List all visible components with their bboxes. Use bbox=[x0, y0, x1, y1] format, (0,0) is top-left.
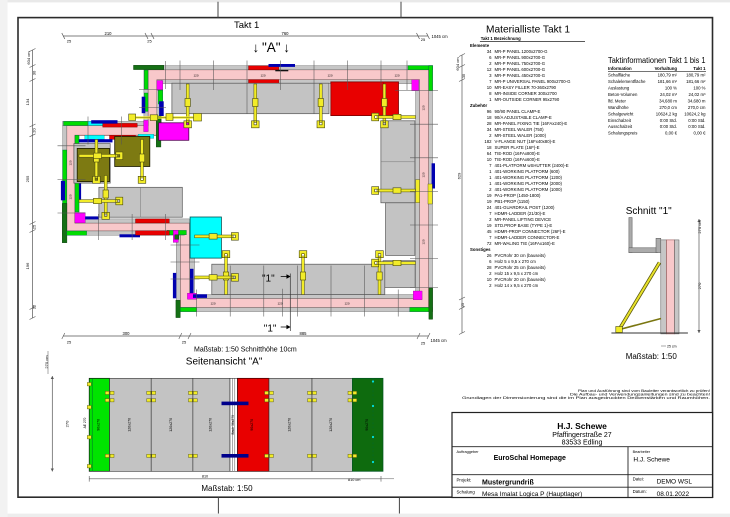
svg-text:25 cm: 25 cm bbox=[667, 345, 677, 349]
svg-text:Taktinformationen Takt 1 bis: Taktinformationen Takt 1 bis 1 bbox=[608, 56, 706, 65]
svg-text:SUPER PLATE (16F)-E: SUPER PLATE (16F)-E bbox=[495, 145, 540, 150]
svg-text:28: 28 bbox=[487, 121, 492, 126]
svg-text:25: 25 bbox=[67, 340, 72, 345]
svg-text:PVCRohr 30 cm (bauseits): PVCRohr 30 cm (bauseits) bbox=[495, 253, 547, 258]
svg-text:Ausschalzeit: Ausschalzeit bbox=[608, 124, 633, 129]
svg-text:24: 24 bbox=[487, 205, 492, 210]
svg-text:PVCRohr 25 cm (bauseits): PVCRohr 25 cm (bauseits) bbox=[495, 265, 547, 270]
svg-text:MR-WALING TIE (16FAx160)-E: MR-WALING TIE (16FAx160)-E bbox=[495, 241, 556, 246]
svg-text:180,79 m²: 180,79 m² bbox=[658, 73, 678, 78]
svg-text:lfd. Meter: lfd. Meter bbox=[608, 98, 626, 103]
svg-text:83533 Edling: 83533 Edling bbox=[562, 439, 603, 446]
svg-text:25: 25 bbox=[32, 304, 37, 309]
svg-text:PVCRohr 20 cm (bauseits): PVCRohr 20 cm (bauseits) bbox=[495, 277, 547, 282]
svg-text:Takt 1: Takt 1 bbox=[234, 20, 259, 31]
svg-text:"1": "1" bbox=[264, 323, 277, 334]
svg-text:TIE-ROD (16FAx600)-E: TIE-ROD (16FAx600)-E bbox=[495, 157, 541, 162]
svg-text:120: 120 bbox=[422, 239, 426, 244]
svg-text:181,66 m²: 181,66 m² bbox=[686, 79, 706, 84]
svg-text:19: 19 bbox=[487, 223, 492, 228]
svg-text:19: 19 bbox=[487, 199, 492, 204]
svg-text:270: 270 bbox=[64, 420, 69, 427]
svg-text:34,680 m: 34,680 m bbox=[659, 98, 677, 103]
svg-text:401-GUARDRAIL POST (1200): 401-GUARDRAIL POST (1200) bbox=[495, 205, 556, 210]
svg-text:90x270: 90x270 bbox=[250, 419, 254, 431]
svg-text:64: 64 bbox=[487, 151, 492, 156]
svg-text:196: 196 bbox=[25, 262, 30, 269]
svg-text:401-WORKING PLATFORM (1200): 401-WORKING PLATFORM (1200) bbox=[495, 175, 563, 180]
svg-text:25: 25 bbox=[32, 224, 37, 229]
svg-text:10: 10 bbox=[487, 277, 492, 282]
svg-text:300: 300 bbox=[123, 331, 131, 336]
svg-text:182: 182 bbox=[484, 139, 492, 144]
svg-text:"1": "1" bbox=[262, 273, 275, 284]
svg-text:24,02 m³: 24,02 m³ bbox=[660, 92, 678, 97]
svg-text:MR-P UNIVERSAL PANEL 900x2700-: MR-P UNIVERSAL PANEL 900x2700-G bbox=[495, 79, 572, 84]
svg-text:120: 120 bbox=[69, 160, 73, 165]
svg-text:Takt 1: Takt 1 bbox=[481, 36, 494, 41]
svg-text:401-WORKING PLATFORM (600): 401-WORKING PLATFORM (600) bbox=[495, 169, 561, 174]
svg-text:0,00 €: 0,00 € bbox=[665, 131, 678, 136]
svg-text:26: 26 bbox=[487, 253, 492, 258]
svg-text:120: 120 bbox=[394, 74, 399, 78]
svg-text:Mesa Imalat Logica P (Hauptlag: Mesa Imalat Logica P (Hauptlager) bbox=[482, 491, 582, 498]
svg-text:120: 120 bbox=[210, 302, 215, 306]
svg-text:20: 20 bbox=[32, 128, 37, 133]
svg-text:120: 120 bbox=[69, 194, 73, 199]
svg-text:Grundlagen der Dimensionierung: Grundlagen der Dimensionierung sind die … bbox=[462, 396, 710, 400]
svg-text:Beton-Volumen: Beton-Volumen bbox=[608, 92, 638, 97]
svg-text:100 %: 100 % bbox=[693, 86, 705, 91]
svg-text:MR-PANEL FIXING TIE (16FAx240): MR-PANEL FIXING TIE (16FAx240)-E bbox=[495, 121, 568, 126]
svg-text:Takt 1: Takt 1 bbox=[693, 66, 706, 71]
svg-text:Einschalzeit: Einschalzeit bbox=[608, 118, 632, 123]
svg-text:34,680 m: 34,680 m bbox=[688, 98, 706, 103]
svg-text:MR-PANEL LIFTING DEVICE: MR-PANEL LIFTING DEVICE bbox=[495, 217, 552, 222]
svg-text:MR-P PANEL 900x2700-G: MR-P PANEL 900x2700-G bbox=[495, 55, 546, 60]
svg-text:120x270: 120x270 bbox=[329, 418, 333, 432]
svg-text:Datum:: Datum: bbox=[633, 489, 647, 494]
svg-text:255: 255 bbox=[25, 175, 30, 182]
svg-text:EuroSchal Homepage: EuroSchal Homepage bbox=[494, 455, 566, 462]
svg-text:Holz 15 x 9,5 x 270 cm: Holz 15 x 9,5 x 270 cm bbox=[495, 271, 539, 276]
svg-text:604 cm: 604 cm bbox=[26, 51, 31, 65]
svg-text:0:00 Std.: 0:00 Std. bbox=[688, 118, 705, 123]
svg-text:120: 120 bbox=[277, 302, 282, 306]
svg-text:180,79 m²: 180,79 m² bbox=[686, 73, 706, 78]
svg-text:34: 34 bbox=[487, 49, 492, 54]
svg-text:120: 120 bbox=[327, 74, 332, 78]
svg-text:Maßstab: 1:50 Schnitthöhe: Maßstab: 1:50 Schnitthöhe 10cm bbox=[194, 347, 297, 354]
svg-text:MR-P PANEL 750x2700-G: MR-P PANEL 750x2700-G bbox=[495, 61, 546, 66]
svg-text:Schalfläche: Schalfläche bbox=[608, 73, 631, 78]
svg-text:↓ "A" ↓: ↓ "A" ↓ bbox=[253, 40, 291, 55]
svg-text:Schalungspreis: Schalungspreis bbox=[608, 131, 637, 136]
svg-text:0:00 Std.: 0:00 Std. bbox=[688, 124, 705, 129]
svg-text:Schalung: Schalung bbox=[457, 490, 476, 495]
svg-text:Schalgewicht: Schalgewicht bbox=[608, 111, 634, 116]
svg-text:V-FLANGE NUT (16Fx40x80)-E: V-FLANGE NUT (16Fx40x80)-E bbox=[495, 139, 556, 144]
svg-text:96: 96 bbox=[487, 109, 492, 114]
svg-text:Datei:: Datei: bbox=[633, 477, 644, 482]
svg-text:45: 45 bbox=[487, 229, 492, 234]
svg-text:25: 25 bbox=[461, 303, 465, 307]
svg-text:120x270: 120x270 bbox=[128, 418, 132, 432]
svg-text:H.J. Schewe: H.J. Schewe bbox=[633, 456, 670, 463]
svg-text:MR-P PANEL 450x2700-G: MR-P PANEL 450x2700-G bbox=[495, 73, 546, 78]
svg-text:181,66 m²: 181,66 m² bbox=[658, 79, 678, 84]
svg-text:Auftraggeber: Auftraggeber bbox=[457, 450, 480, 454]
svg-text:Holz 5 x 9,5 x 270 cm: Holz 5 x 9,5 x 270 cm bbox=[495, 259, 537, 264]
svg-text:120: 120 bbox=[344, 302, 349, 306]
svg-text:Wandhöhe: Wandhöhe bbox=[608, 105, 629, 110]
svg-text:Mustergrundriß: Mustergrundriß bbox=[482, 479, 534, 486]
svg-text:270,0 cm: 270,0 cm bbox=[659, 105, 677, 110]
svg-text:90x270: 90x270 bbox=[365, 419, 369, 431]
svg-text:Elemente: Elemente bbox=[470, 43, 490, 48]
svg-text:90/A ADJUSTABLE CLAMP-E: 90/A ADJUSTABLE CLAMP-E bbox=[495, 115, 552, 120]
svg-text:18: 18 bbox=[487, 115, 492, 120]
svg-text:120x270: 120x270 bbox=[288, 418, 292, 432]
svg-text:10624,2 kg: 10624,2 kg bbox=[684, 111, 706, 116]
svg-text:810: 810 bbox=[202, 474, 208, 478]
svg-text:10: 10 bbox=[487, 157, 492, 162]
svg-text:28: 28 bbox=[487, 265, 492, 270]
svg-text:24,02 m³: 24,02 m³ bbox=[689, 92, 707, 97]
svg-text:Seitenansicht "A": Seitenansicht "A" bbox=[186, 357, 263, 368]
svg-text:72: 72 bbox=[487, 241, 492, 246]
svg-text:30: 30 bbox=[32, 70, 37, 75]
svg-text:270: 270 bbox=[697, 282, 702, 289]
svg-text:Maßstab: 1:50: Maßstab: 1:50 bbox=[626, 352, 678, 361]
svg-text:25: 25 bbox=[421, 340, 426, 345]
svg-text:25: 25 bbox=[147, 39, 152, 44]
svg-text:Information: Information bbox=[608, 66, 632, 71]
svg-text:AE 270: AE 270 bbox=[83, 417, 87, 428]
svg-text:1045 cm: 1045 cm bbox=[432, 34, 449, 39]
svg-text:MR-P PANEL 600x2700-G: MR-P PANEL 600x2700-G bbox=[495, 67, 546, 72]
svg-text:810 cm: 810 cm bbox=[348, 478, 360, 482]
svg-text:19: 19 bbox=[487, 193, 492, 198]
svg-text:120: 120 bbox=[193, 74, 198, 78]
svg-text:18: 18 bbox=[487, 145, 492, 150]
svg-text:604 cm: 604 cm bbox=[455, 57, 460, 71]
svg-text:MR-OUTSIDE CORNER 95x2790: MR-OUTSIDE CORNER 95x2790 bbox=[495, 97, 560, 102]
svg-text:34: 34 bbox=[487, 127, 492, 132]
svg-text:100 %: 100 % bbox=[665, 86, 677, 91]
svg-text:134: 134 bbox=[25, 98, 30, 105]
svg-text:MR-INSIDE CORNER 300x2700: MR-INSIDE CORNER 300x2700 bbox=[495, 91, 558, 96]
svg-text:Pfaffingerstraße 27: Pfaffingerstraße 27 bbox=[552, 432, 612, 439]
svg-text:270,0 cm: 270,0 cm bbox=[688, 105, 706, 110]
svg-text:Bezeichnung: Bezeichnung bbox=[494, 36, 521, 41]
svg-text:HDMR-LADDER CONNECTOR-E: HDMR-LADDER CONNECTOR-E bbox=[495, 235, 560, 240]
svg-text:TIE-ROD (16FAx800)-E: TIE-ROD (16FAx800)-E bbox=[495, 151, 541, 156]
svg-text:MR-STEEL WALER (1000): MR-STEEL WALER (1000) bbox=[495, 133, 547, 138]
svg-text:1045 cm: 1045 cm bbox=[431, 338, 448, 343]
svg-text:210: 210 bbox=[105, 31, 113, 36]
svg-text:H.J. Schewe: H.J. Schewe bbox=[557, 421, 607, 431]
svg-text:401-WORKING PLATFORM (1000): 401-WORKING PLATFORM (1000) bbox=[495, 187, 563, 192]
svg-text:120x270: 120x270 bbox=[209, 418, 213, 432]
svg-text:30: 30 bbox=[462, 74, 466, 78]
svg-text:DEMO WSL: DEMO WSL bbox=[657, 479, 693, 486]
svg-text:STD.PROP BASE (TYPE 1)-E: STD.PROP BASE (TYPE 1)-E bbox=[495, 223, 553, 228]
svg-text:08.01.2022: 08.01.2022 bbox=[657, 491, 690, 498]
svg-text:120: 120 bbox=[260, 74, 265, 78]
svg-text:12: 12 bbox=[487, 67, 492, 72]
svg-text:629: 629 bbox=[457, 172, 462, 179]
svg-text:401-PLATFORM wSHUTTER (2400)-E: 401-PLATFORM wSHUTTER (2400)-E bbox=[495, 163, 569, 168]
svg-text:PA1-PROP (1450-1800): PA1-PROP (1450-1800) bbox=[495, 193, 542, 198]
svg-text:MR-P PANEL 1200x2700-G: MR-P PANEL 1200x2700-G bbox=[495, 49, 549, 54]
svg-text:Schnitt "1": Schnitt "1" bbox=[626, 206, 672, 217]
svg-text:0:00 Std.: 0:00 Std. bbox=[660, 124, 677, 129]
svg-text:120: 120 bbox=[422, 172, 426, 177]
svg-text:Zubehör: Zubehör bbox=[470, 103, 488, 108]
svg-text:Holz 14 x 9,5 x 270 cm: Holz 14 x 9,5 x 270 cm bbox=[495, 283, 539, 288]
svg-text:Schalelementfläche: Schalelementfläche bbox=[608, 79, 646, 84]
svg-text:401-WORKING PLATFORM (2000): 401-WORKING PLATFORM (2000) bbox=[495, 181, 563, 186]
svg-text:25: 25 bbox=[182, 340, 187, 345]
svg-text:Auslastung: Auslastung bbox=[608, 86, 630, 91]
svg-text:25: 25 bbox=[421, 37, 426, 42]
svg-text:Materialliste Takt 1: Materialliste Takt 1 bbox=[486, 23, 570, 35]
svg-text:Bauh 36x270: Bauh 36x270 bbox=[231, 415, 235, 435]
svg-text:0:00 Std.: 0:00 Std. bbox=[660, 118, 677, 123]
svg-text:760: 760 bbox=[282, 31, 290, 36]
svg-text:HDMR-LADDER (21/30)-E: HDMR-LADDER (21/30)-E bbox=[495, 211, 546, 216]
svg-text:Vorhaltung: Vorhaltung bbox=[655, 66, 678, 71]
svg-text:MR-EASY FILLER 70-360x2790: MR-EASY FILLER 70-360x2790 bbox=[495, 85, 557, 90]
svg-text:HDMR-PROP CONNECTOR (26F)-E: HDMR-PROP CONNECTOR (26F)-E bbox=[495, 229, 566, 234]
svg-text:10: 10 bbox=[487, 85, 492, 90]
svg-text:Sonstiges: Sonstiges bbox=[470, 247, 491, 252]
svg-text:Maßstab: 1:50: Maßstab: 1:50 bbox=[201, 484, 253, 493]
svg-text:Projekt:: Projekt: bbox=[457, 477, 472, 482]
svg-text:885: 885 bbox=[300, 331, 308, 336]
svg-text:120: 120 bbox=[422, 105, 426, 110]
svg-text:Bearbeiter: Bearbeiter bbox=[633, 450, 651, 454]
svg-text:120x270: 120x270 bbox=[169, 418, 173, 432]
svg-text:90x270: 90x270 bbox=[97, 419, 101, 431]
svg-text:MR-STEEL WALER (750): MR-STEEL WALER (750) bbox=[495, 127, 545, 132]
svg-text:10624,2 kg: 10624,2 kg bbox=[656, 111, 678, 116]
svg-text:PB1-PROP (1150): PB1-PROP (1150) bbox=[495, 199, 531, 204]
svg-text:90/90 PANEL CLAMP-E: 90/90 PANEL CLAMP-E bbox=[495, 109, 541, 114]
svg-text:25: 25 bbox=[67, 39, 72, 44]
svg-text:270 cm: 270 cm bbox=[697, 220, 702, 234]
svg-text:0,00 €: 0,00 € bbox=[694, 131, 707, 136]
